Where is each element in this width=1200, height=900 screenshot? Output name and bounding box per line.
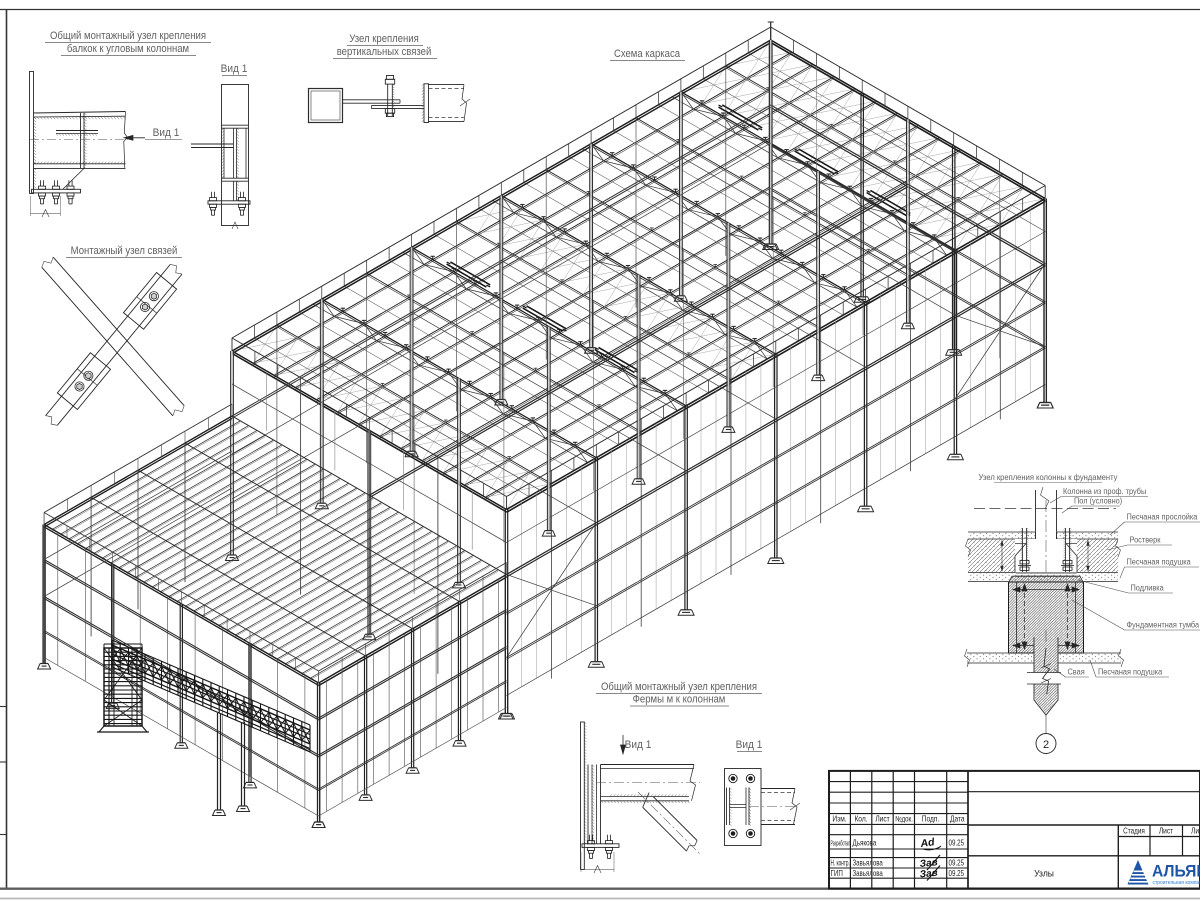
svg-text:Схема каркаса: Схема каркаса — [614, 49, 680, 61]
svg-text:Лист: Лист — [1159, 826, 1174, 836]
svg-text:Фундаментная тумба: Фундаментная тумба — [1127, 620, 1200, 629]
svg-text:09.25: 09.25 — [949, 860, 965, 868]
svg-text:Подп.: Подп. — [922, 814, 940, 824]
svg-text:Н. контр.: Н. контр. — [831, 859, 850, 867]
svg-text:09.25: 09.25 — [949, 870, 965, 878]
svg-text:Изм.: Изм. — [832, 814, 846, 824]
svg-text:Вид 1: Вид 1 — [153, 127, 180, 139]
svg-text:строительная компания: строительная компания — [1153, 880, 1200, 886]
svg-text:Общий монтажный узел крепления: Общий монтажный узел крепления — [601, 681, 757, 694]
svg-text:№док.: №док. — [895, 816, 913, 824]
svg-text:Разработал: Разработал — [831, 840, 851, 848]
svg-text:Песчаная прослойка: Песчаная прослойка — [1127, 512, 1199, 521]
svg-text:Завьялова: Завьялова — [853, 870, 883, 878]
svg-text:Узел крепления колонны к фунда: Узел крепления колонны к фундаменту — [979, 473, 1118, 482]
svg-text:Ростверк: Ростверк — [1130, 535, 1162, 544]
svg-text:Подливка: Подливка — [1131, 583, 1165, 592]
svg-text:Кол.: Кол. — [854, 814, 867, 824]
svg-text:2: 2 — [1043, 739, 1049, 751]
svg-text:Дьякова: Дьякова — [853, 840, 877, 848]
svg-text:вертикальных связей: вертикальных связей — [337, 47, 432, 59]
svg-text:Общий монтажный узел крепления: Общий монтажный узел крепления — [50, 30, 206, 43]
svg-text:Узлы: Узлы — [1034, 868, 1054, 879]
svg-text:Пол (условно): Пол (условно) — [1074, 496, 1123, 505]
svg-text:Дата: Дата — [950, 814, 966, 824]
svg-text:ГИП: ГИП — [831, 870, 843, 878]
svg-text:Свая: Свая — [1068, 667, 1085, 676]
svg-text:Завьялова: Завьялова — [853, 860, 883, 868]
svg-text:Вид 1: Вид 1 — [625, 739, 652, 751]
svg-text:Вид 1: Вид 1 — [221, 63, 248, 75]
svg-text:АЛЬЯНС: АЛЬЯНС — [1152, 862, 1200, 880]
svg-text:Лист: Лист — [875, 814, 890, 824]
svg-text:Песчаная подушка: Песчаная подушка — [1098, 667, 1163, 676]
svg-text:Фермы м к колоннам: Фермы м к колоннам — [633, 694, 726, 706]
svg-text:Вид 1: Вид 1 — [736, 739, 763, 751]
svg-text:Ad: Ad — [919, 836, 936, 850]
svg-text:Стадия: Стадия — [1123, 827, 1145, 836]
svg-text:балкок к угловым колоннам: балкок к угловым колоннам — [67, 43, 189, 56]
svg-text:Колонна из проф. трубы: Колонна из проф. трубы — [1063, 487, 1146, 496]
svg-text:Лис: Лис — [1191, 826, 1200, 836]
svg-text:09.25: 09.25 — [949, 840, 965, 848]
svg-text:Монтажный узел связей: Монтажный узел связей — [71, 246, 178, 258]
svg-text:Песчаная подушка: Песчаная подушка — [1127, 557, 1192, 566]
svg-text:Узел крепления: Узел крепления — [349, 34, 419, 46]
